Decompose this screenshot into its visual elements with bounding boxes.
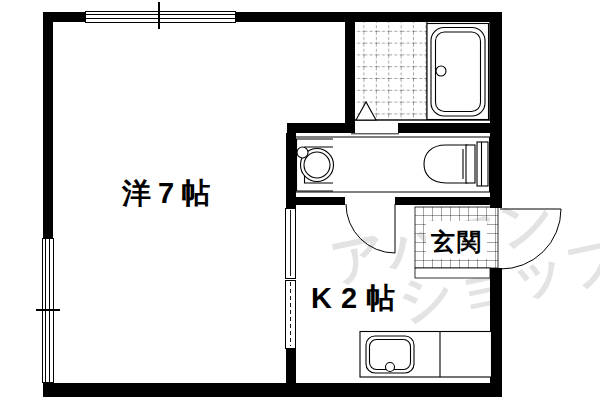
- kitchen-sink: [366, 336, 414, 373]
- washroom-door: [346, 204, 395, 253]
- sliding-door: [286, 208, 296, 348]
- room-label-entrance: 玄関: [427, 226, 487, 258]
- bath-tile-floor: [352, 20, 427, 120]
- entrance-door-arc: [500, 209, 561, 269]
- floor-plan-drawing: [0, 0, 600, 400]
- sink-drain-icon: [386, 363, 395, 372]
- wall-west-right-upper: [286, 133, 296, 208]
- window-top: [85, 2, 235, 29]
- bathtub: [427, 24, 489, 120]
- wall-bath-bottom-right: [398, 123, 502, 133]
- faucet-icon: [297, 147, 308, 158]
- entrance-step: [415, 268, 490, 278]
- wall-washroom-bottom-right: [395, 197, 502, 205]
- washbasin: [297, 139, 334, 191]
- bathtub-drain-icon: [436, 66, 446, 76]
- wall-bottom: [43, 383, 502, 397]
- wall-right-upper: [490, 12, 502, 208]
- wall-bath-bottom-left: [287, 123, 353, 133]
- wall-west-right-lower: [286, 348, 296, 397]
- room-label-kitchen: K2帖: [311, 279, 404, 319]
- washroom-door-arc: [346, 204, 395, 253]
- bathroom: [351, 20, 490, 134]
- wall-washroom-bottom-left: [286, 197, 345, 205]
- entrance-door: [500, 209, 561, 269]
- kitchen-counter: [360, 332, 492, 378]
- room-label-western: 洋7帖: [122, 174, 217, 214]
- window-left: [36, 238, 60, 382]
- washroom: [296, 137, 490, 192]
- floor-plan: アパマン ショップ: [0, 0, 600, 400]
- toilet: [424, 142, 488, 186]
